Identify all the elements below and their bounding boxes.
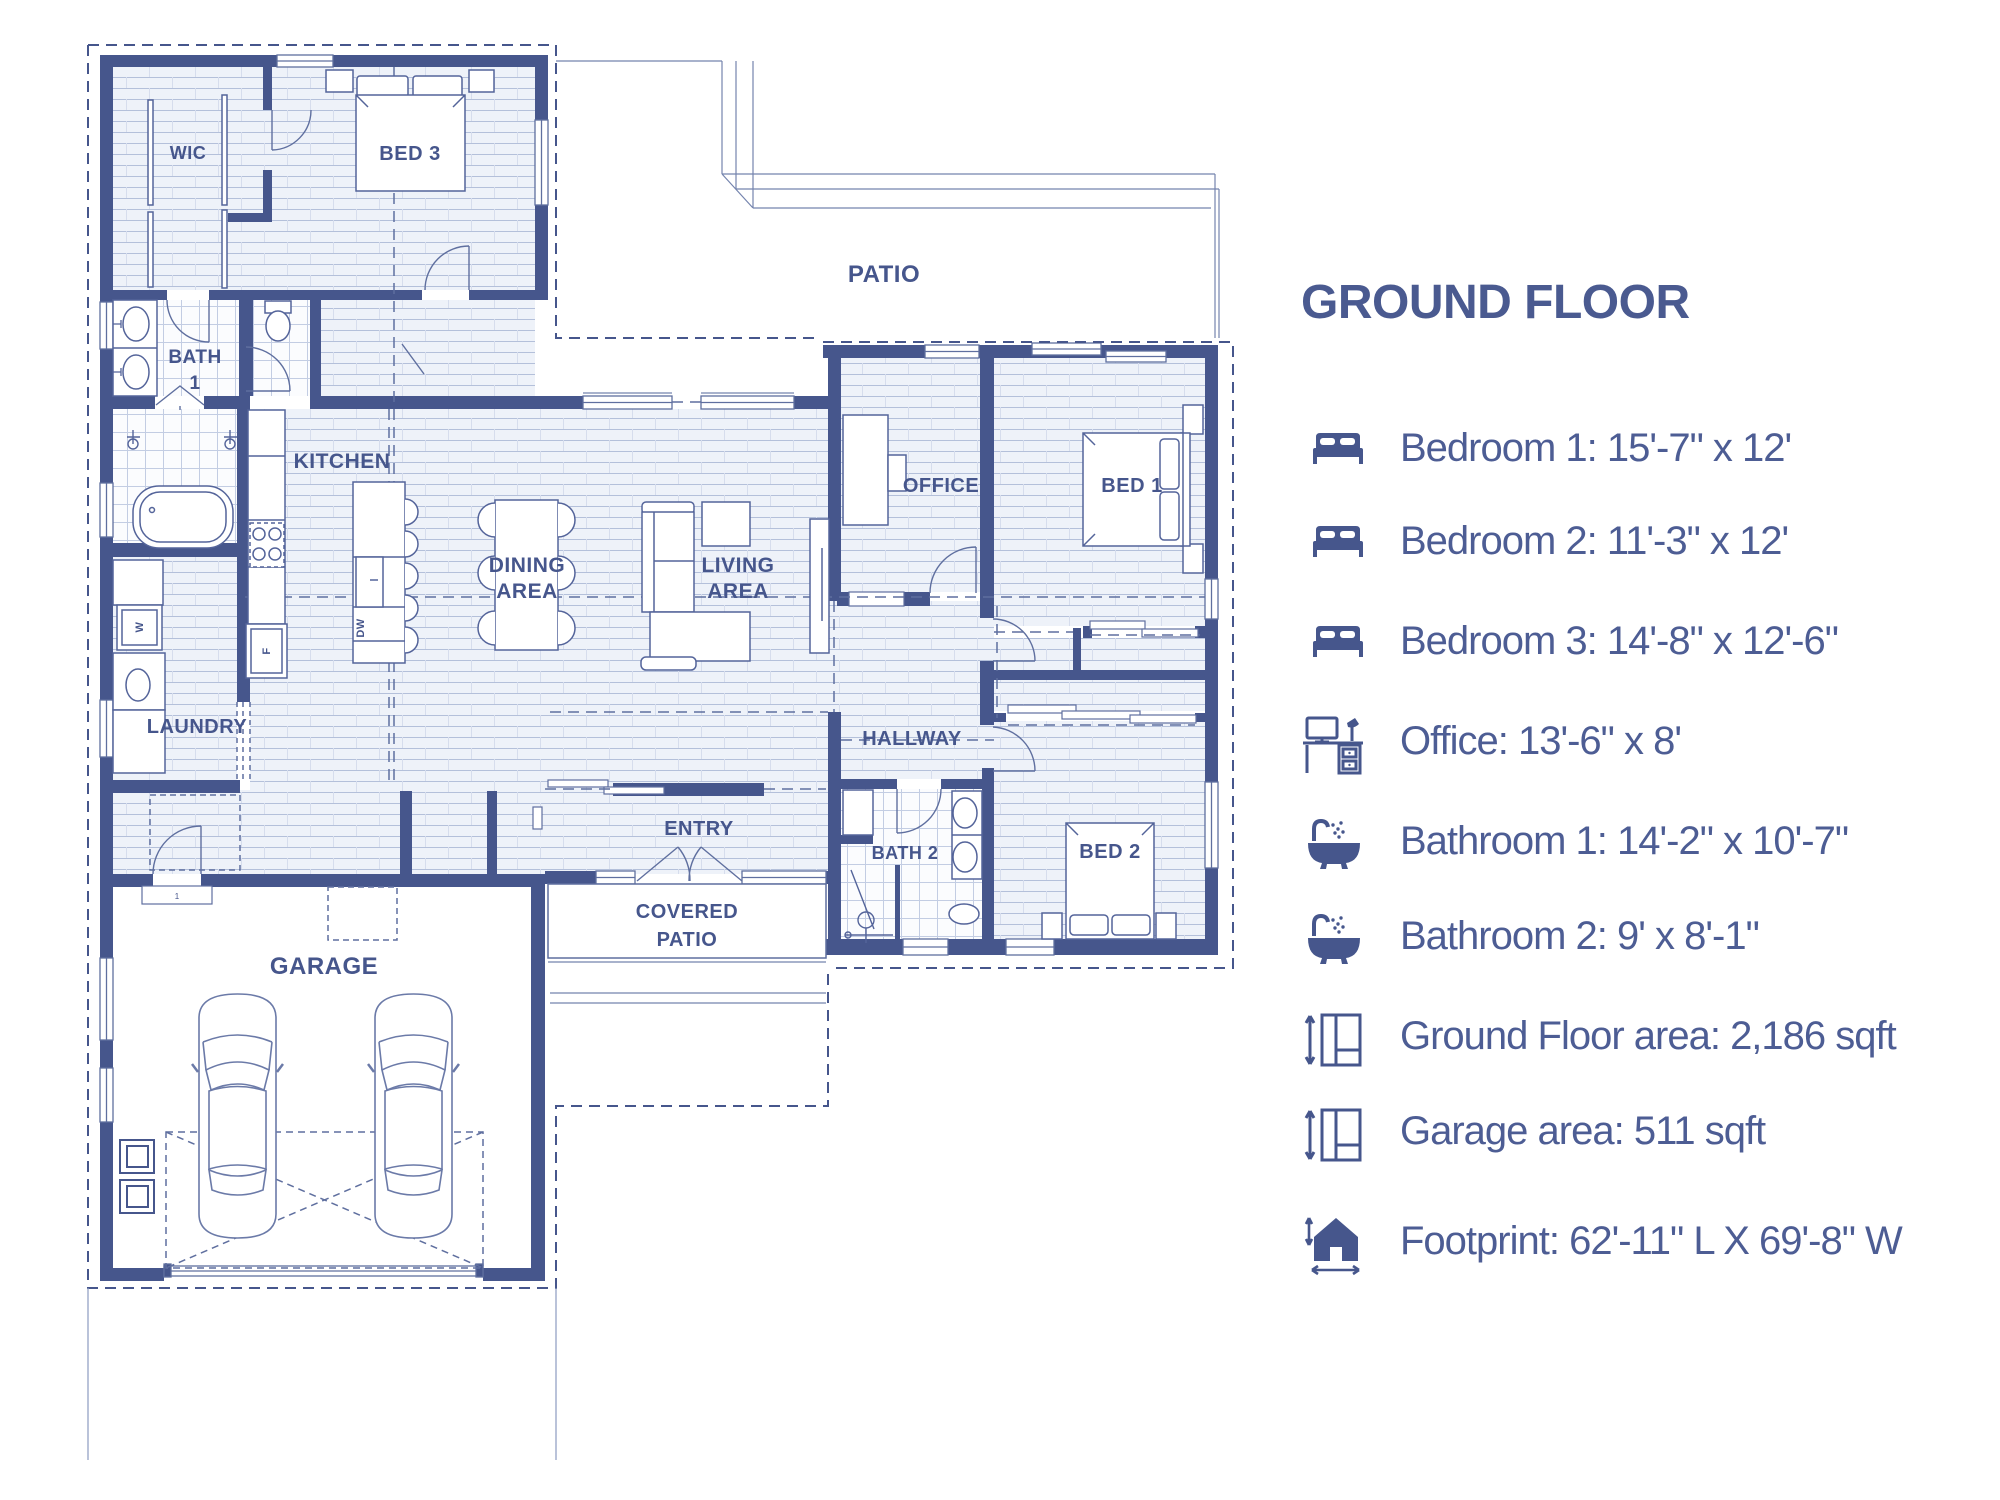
svg-text:BATH: BATH [168, 347, 221, 368]
svg-text:ENTRY: ENTRY [664, 818, 734, 840]
svg-text:KITCHEN: KITCHEN [294, 450, 391, 473]
svg-text:AREA: AREA [496, 580, 558, 603]
svg-text:BED 1: BED 1 [1101, 475, 1162, 497]
svg-text:COVERED: COVERED [636, 901, 738, 923]
svg-text:WIC: WIC [170, 143, 207, 163]
svg-text:Bedroom 1: 15'-7" x 12': Bedroom 1: 15'-7" x 12' [1400, 426, 1791, 470]
svg-text:Footprint: 62'-11" L X 69'-8": Footprint: 62'-11" L X 69'-8" W [1400, 1219, 1903, 1263]
svg-text:AREA: AREA [707, 580, 769, 603]
svg-text:PATIO: PATIO [657, 929, 718, 951]
svg-text:1: 1 [189, 373, 200, 394]
svg-text:GARAGE: GARAGE [270, 953, 378, 980]
svg-text:BED 3: BED 3 [379, 143, 440, 165]
svg-text:Bedroom 3: 14'-8" x 12'-6": Bedroom 3: 14'-8" x 12'-6" [1400, 619, 1838, 663]
svg-text:Bedroom 2: 11'-3" x 12': Bedroom 2: 11'-3" x 12' [1400, 519, 1788, 563]
svg-text:1: 1 [175, 892, 180, 901]
svg-text:LIVING: LIVING [701, 554, 774, 577]
svg-text:DW: DW [355, 618, 367, 637]
svg-text:PATIO: PATIO [848, 261, 920, 288]
svg-text:LAUNDRY: LAUNDRY [147, 716, 248, 738]
svg-text:DINING: DINING [489, 554, 566, 577]
svg-text:Garage area: 511 sqft: Garage area: 511 sqft [1400, 1109, 1766, 1153]
svg-text:Office: 13'-6" x 8': Office: 13'-6" x 8' [1400, 719, 1681, 763]
svg-text:W: W [134, 621, 146, 632]
svg-text:OFFICE: OFFICE [903, 475, 979, 497]
svg-text:BATH 2: BATH 2 [872, 843, 939, 863]
svg-text:GROUND FLOOR: GROUND FLOOR [1301, 276, 1690, 329]
svg-text:Bathroom 1: 14'-2" x 10'-7": Bathroom 1: 14'-2" x 10'-7" [1400, 819, 1848, 863]
svg-text:Bathroom 2: 9' x 8'-1": Bathroom 2: 9' x 8'-1" [1400, 914, 1759, 958]
svg-text:HALLWAY: HALLWAY [862, 728, 962, 750]
svg-text:BED 2: BED 2 [1079, 841, 1140, 863]
svg-text:Ground Floor area: 2,186 sqft: Ground Floor area: 2,186 sqft [1400, 1014, 1897, 1058]
svg-text:F: F [261, 647, 273, 654]
